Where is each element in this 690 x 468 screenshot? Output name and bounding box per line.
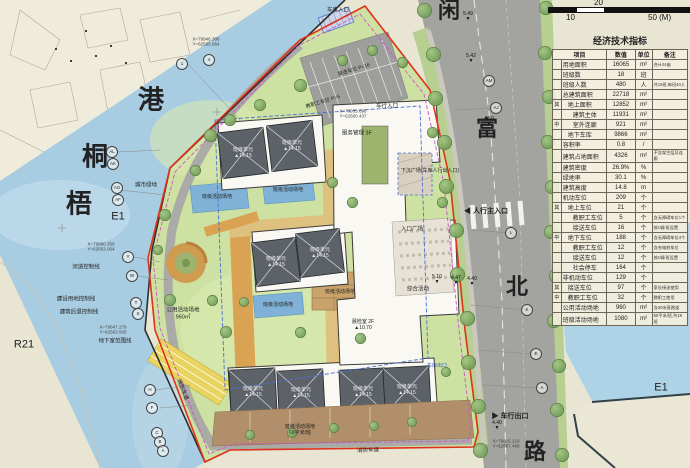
tree-icon <box>355 333 366 344</box>
indicator-cell: 5 <box>607 213 636 223</box>
indicator-cell <box>553 130 562 140</box>
indicator-cell: 32 <box>607 293 636 303</box>
indicator-cell: 建筑密度 <box>561 163 606 173</box>
indicator-cell <box>553 183 562 193</box>
sunken-plaza <box>398 153 432 195</box>
indicator-row: 建筑密度26.9%% <box>553 163 688 173</box>
indicator-cell: / <box>635 140 652 150</box>
tree-icon <box>555 448 569 462</box>
indicator-cell: m <box>635 183 652 193</box>
indicator-cell <box>652 183 687 193</box>
indicator-cell: m² <box>635 120 652 130</box>
tree-icon <box>449 223 464 238</box>
indicator-row: 教职工车位12个含充电桩车位 <box>553 243 688 253</box>
indicator-cell: m² <box>635 90 652 100</box>
site-plan-canvas: 港桐梧闲富北路E1E1R21城市绿地河道控制线建设用地控制线建筑后退控制线地下室… <box>0 0 690 468</box>
indicator-row: 中教职工车位32个教职工使用 <box>553 293 688 303</box>
play-mound <box>166 243 206 283</box>
indicator-cell <box>553 243 562 253</box>
indicator-row: 社会停车164个 <box>553 263 688 273</box>
indicator-cell: 机动车位 <box>561 193 606 203</box>
indicator-row: 其地上车位21个 <box>553 203 688 213</box>
tree-icon <box>295 327 306 338</box>
indicator-cell <box>553 253 562 263</box>
tree-icon <box>204 129 217 142</box>
indicator-cell: 绿地率 <box>561 173 606 183</box>
tree-icon <box>369 421 379 431</box>
indicator-cell <box>553 173 562 183</box>
tree-icon <box>287 428 297 438</box>
indicator-row: 接送车位12个按1辆/班设置 <box>553 253 688 263</box>
indicator-cell: 97 <box>607 283 636 293</box>
scale-label-50m: 50 (M) <box>648 13 671 22</box>
indicator-cell: 个 <box>635 193 652 203</box>
indicator-cell: 16065 <box>607 60 636 70</box>
indicator-cell: 12852 <box>607 100 636 110</box>
indicator-cell: 教职工车位 <box>561 213 606 223</box>
indicator-cell: 18 <box>607 70 636 80</box>
table-column-header: 单位 <box>635 50 652 60</box>
indicator-cell: 30.1 <box>607 173 636 183</box>
indicator-cell: 164 <box>607 263 636 273</box>
indicator-cell <box>553 90 562 100</box>
indicator-cell: 含充电桩车位 <box>652 243 687 253</box>
indicator-cell: m² <box>635 313 652 326</box>
indicator-cell: 1080 <box>607 313 636 326</box>
indicator-row: 地下车库9866m² <box>553 130 688 140</box>
indicator-cell: 含30米直跑道 <box>652 303 687 313</box>
indicator-cell: 60平米/班,共18班 <box>652 313 687 326</box>
indicator-cell: 其 <box>553 283 562 293</box>
tree-icon <box>329 423 339 433</box>
indicator-cell <box>652 130 687 140</box>
tree-icon <box>190 165 201 176</box>
indicator-cell: 地上面积 <box>561 100 606 110</box>
indicator-cell: 4326 <box>607 150 636 163</box>
indicator-cell: 129 <box>607 273 636 283</box>
tree-icon <box>367 45 378 56</box>
indicator-cell <box>553 193 562 203</box>
indicator-cell: 含无障碍车位1个 <box>652 213 687 223</box>
indicator-cell <box>553 70 562 80</box>
indicator-cell: m² <box>635 130 652 140</box>
tree-icon <box>164 294 176 306</box>
tree-icon <box>428 91 443 106</box>
indicator-cell: 接送车位 <box>561 283 606 293</box>
indicator-cell: 960 <box>607 303 636 313</box>
indicator-cell: 接送车位 <box>561 223 606 233</box>
tree-icon <box>245 430 255 440</box>
indicator-cell: 个 <box>635 233 652 243</box>
indicator-row: 中室外连廊921m² <box>553 120 688 130</box>
building-courtyard <box>362 126 388 184</box>
table-title: 经济技术指标 <box>552 34 688 47</box>
indicator-cell: 合计24亩 <box>652 60 687 70</box>
tree-icon <box>450 267 465 282</box>
indicator-cell <box>652 120 687 130</box>
indicator-cell: 个 <box>635 253 652 263</box>
indicator-cell: % <box>635 163 652 173</box>
indicator-cell: 0.8 <box>607 140 636 150</box>
indicator-row: 绿地率30.1% <box>553 173 688 183</box>
indicator-cell: 480 <box>607 80 636 90</box>
indicator-cell <box>553 80 562 90</box>
tree-icon <box>427 127 438 138</box>
indicator-cell: 其 <box>553 100 562 110</box>
indicator-cell: 非机动车位 <box>561 273 606 283</box>
indicator-cell: 容积率 <box>561 140 606 150</box>
indicator-cell: 按1辆/班设置 <box>652 223 687 233</box>
indicator-cell <box>553 150 562 163</box>
indicator-cell: 中 <box>553 120 562 130</box>
indicator-cell: 教职工使用 <box>652 293 687 303</box>
indicator-row: 公用活动场地960m²含30米直跑道 <box>553 303 688 313</box>
indicator-cell: 公用活动场地 <box>561 303 606 313</box>
indicator-row: 中地下车位188个含无障碍车位4个 <box>553 233 688 243</box>
indicator-cell <box>652 110 687 120</box>
tree-icon <box>294 79 307 92</box>
indicator-cell <box>553 140 562 150</box>
indicator-cell: 教职工车位 <box>561 243 606 253</box>
indicator-cell: 921 <box>607 120 636 130</box>
indicator-cell <box>652 140 687 150</box>
indicator-cell: 个 <box>635 213 652 223</box>
tree-icon <box>207 295 218 306</box>
indicator-row: 接送车位16个按1辆/班设置 <box>553 223 688 233</box>
indicator-cell: 个 <box>635 223 652 233</box>
scale-bar: 20 10 50 (M) <box>546 0 690 26</box>
indicator-row: 机动车位209个 <box>553 193 688 203</box>
tree-icon <box>426 47 441 62</box>
indicator-cell: 21 <box>607 203 636 213</box>
indicator-row: 其地上面积12852m² <box>553 100 688 110</box>
scale-label-10: 10 <box>566 13 575 22</box>
tree-icon <box>347 197 358 208</box>
indicator-cell <box>553 163 562 173</box>
tree-icon <box>153 245 163 255</box>
indicator-cell: 室外连廊 <box>561 120 606 130</box>
indicator-cell: 人 <box>635 80 652 90</box>
indicator-row: 教职工车位5个含无障碍车位1个 <box>553 213 688 223</box>
indicator-cell: 中 <box>553 293 562 303</box>
tree-icon <box>407 417 417 427</box>
indicator-cell: 地上车位 <box>561 203 606 213</box>
tree-icon <box>337 55 348 66</box>
tree-icon <box>417 3 432 18</box>
tree-icon <box>538 46 552 60</box>
indicator-row: 用地面积16065m²合计24亩 <box>553 60 688 70</box>
indicator-cell: 不含架空层及连廊 <box>652 150 687 163</box>
indicator-cell <box>652 163 687 173</box>
tree-icon <box>460 311 475 326</box>
indicator-cell <box>652 90 687 100</box>
indicator-cell: 班级人数 <box>561 80 606 90</box>
indicator-cell <box>652 263 687 273</box>
indicator-cell <box>553 303 562 313</box>
indicator-cell: 地下车库 <box>561 130 606 140</box>
indicator-cell: 社会停车 <box>561 263 606 273</box>
indicator-cell <box>652 173 687 183</box>
indicator-cell: 家长接送使用 <box>652 283 687 293</box>
tree-icon <box>327 177 338 188</box>
indicator-cell: 209 <box>607 193 636 203</box>
indicator-cell: 个 <box>635 263 652 273</box>
indicator-cell: m² <box>635 150 652 163</box>
tree-icon <box>437 197 448 208</box>
indicator-cell: m² <box>635 110 652 120</box>
indicator-cell <box>553 213 562 223</box>
indicator-cell <box>553 273 562 283</box>
indicator-cell: 班 <box>635 70 652 80</box>
indicator-cell: 188 <box>607 233 636 243</box>
indicator-table: 项目数值单位备注用地面积16065m²合计24亩班级数18班班级人数480人共1… <box>552 49 688 326</box>
indicator-cell: m² <box>635 60 652 70</box>
indicators-table: 经济技术指标 项目数值单位备注用地面积16065m²合计24亩班级数18班班级人… <box>552 34 688 326</box>
indicator-row: 总建筑面积22718m² <box>553 90 688 100</box>
indicator-row: 班级数18班 <box>553 70 688 80</box>
indicator-cell: m² <box>635 303 652 313</box>
tree-icon <box>461 355 476 370</box>
indicator-row: 班级人数480人共18班,每班40人 <box>553 80 688 90</box>
tree-icon <box>552 359 566 373</box>
indicator-cell: 22718 <box>607 90 636 100</box>
indicator-cell: 12 <box>607 253 636 263</box>
indicator-cell <box>652 100 687 110</box>
tree-icon <box>441 367 451 377</box>
indicator-cell: 11931 <box>607 110 636 120</box>
indicator-cell: 建筑高度 <box>561 183 606 193</box>
table-column-header: 数值 <box>607 50 636 60</box>
table-column-header: 备注 <box>652 50 687 60</box>
indicator-cell <box>652 70 687 80</box>
indicator-cell: 其 <box>553 203 562 213</box>
indicator-cell <box>652 203 687 213</box>
scale-label-20: 20 <box>594 0 603 7</box>
indicator-row: 其接送车位97个家长接送使用 <box>553 283 688 293</box>
tree-icon <box>239 297 249 307</box>
tree-icon <box>224 114 236 126</box>
indicator-cell: 按1辆/班设置 <box>652 253 687 263</box>
indicator-row: 非机动车位129个 <box>553 273 688 283</box>
indicator-row: 建筑主体11931m² <box>553 110 688 120</box>
indicator-cell: 建筑占地面积 <box>561 150 606 163</box>
indicator-cell <box>652 193 687 203</box>
indicator-row: 建筑占地面积4326m²不含架空层及连廊 <box>553 150 688 163</box>
indicator-cell: 建筑主体 <box>561 110 606 120</box>
tree-icon <box>254 99 266 111</box>
indicator-cell: 总建筑面积 <box>561 90 606 100</box>
indicator-cell: m² <box>635 100 652 110</box>
tree-icon <box>159 209 171 221</box>
indicator-cell: 个 <box>635 273 652 283</box>
indicator-cell <box>553 110 562 120</box>
indicator-cell <box>652 273 687 283</box>
indicator-cell <box>553 313 562 326</box>
tree-icon <box>473 443 488 458</box>
indicator-cell: 教职工车位 <box>561 293 606 303</box>
indicator-cell: 个 <box>635 243 652 253</box>
indicator-cell: 个 <box>635 203 652 213</box>
indicator-row: 建筑高度14.8m <box>553 183 688 193</box>
indicator-cell <box>553 263 562 273</box>
indicator-row: 班级活动场地1080m²60平米/班,共18班 <box>553 313 688 326</box>
indicator-cell: 地下车位 <box>561 233 606 243</box>
table-column-header: 项目 <box>553 50 607 60</box>
indicator-cell: % <box>635 173 652 183</box>
indicator-cell: 个 <box>635 293 652 303</box>
indicator-cell: 班级活动场地 <box>561 313 606 326</box>
indicator-cell: 个 <box>635 283 652 293</box>
indicator-cell: 16 <box>607 223 636 233</box>
indicator-cell <box>553 223 562 233</box>
indicator-cell: 12 <box>607 243 636 253</box>
indicator-cell: 用地面积 <box>561 60 606 70</box>
indicator-cell <box>553 60 562 70</box>
indicator-cell: 14.8 <box>607 183 636 193</box>
indicator-row: 容积率0.8/ <box>553 140 688 150</box>
indicator-cell: 9866 <box>607 130 636 140</box>
tree-icon <box>220 326 232 338</box>
indicator-cell: 班级数 <box>561 70 606 80</box>
indicator-cell: 含无障碍车位4个 <box>652 233 687 243</box>
indicator-cell: 中 <box>553 233 562 243</box>
indicator-cell: 接送车位 <box>561 253 606 263</box>
tree-icon <box>397 57 408 68</box>
indicator-cell: 共18班,每班40人 <box>652 80 687 90</box>
tree-icon <box>439 179 454 194</box>
tree-icon <box>437 135 452 150</box>
tree-icon <box>471 399 486 414</box>
indicator-cell: 26.9% <box>607 163 636 173</box>
